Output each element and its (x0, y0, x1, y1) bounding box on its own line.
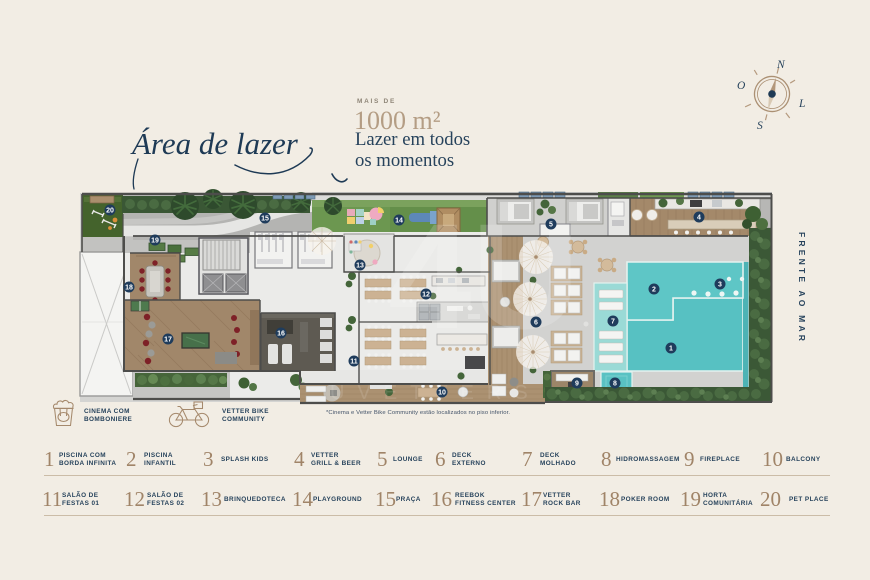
svg-text:8: 8 (613, 381, 617, 388)
svg-text:2: 2 (652, 287, 656, 294)
svg-text:3: 3 (718, 282, 722, 289)
svg-text:9: 9 (575, 381, 579, 388)
svg-text:4U: 4U (388, 192, 580, 360)
svg-text:16: 16 (277, 331, 285, 338)
svg-text:12: 12 (422, 292, 430, 299)
svg-text:7: 7 (611, 319, 615, 326)
svg-text:10: 10 (438, 390, 446, 397)
svg-text:13: 13 (356, 263, 364, 270)
svg-text:20: 20 (106, 208, 114, 215)
svg-text:14: 14 (395, 218, 403, 225)
svg-text:18: 18 (125, 285, 133, 292)
svg-text:UVETTERS: UVETTERS (330, 382, 541, 404)
svg-text:19: 19 (151, 238, 159, 245)
svg-text:11: 11 (350, 359, 358, 366)
svg-text:15: 15 (261, 216, 269, 223)
svg-text:6: 6 (534, 320, 538, 327)
svg-text:1: 1 (669, 346, 673, 353)
svg-text:5: 5 (549, 222, 553, 229)
svg-text:4: 4 (697, 215, 701, 222)
svg-text:17: 17 (164, 337, 172, 344)
